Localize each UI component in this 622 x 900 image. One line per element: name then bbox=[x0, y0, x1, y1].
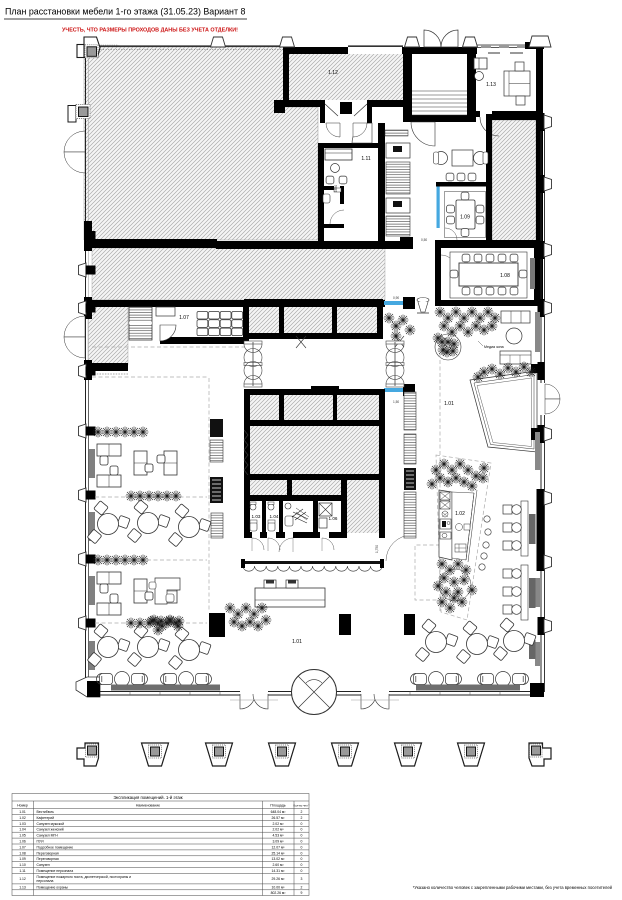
svg-text:1.11: 1.11 bbox=[361, 156, 371, 162]
svg-text:Подсобное помещение: Подсобное помещение bbox=[37, 845, 74, 849]
svg-text:1.09: 1.09 bbox=[19, 857, 26, 861]
svg-text:Экспликация помещений. 1-й эта: Экспликация помещений. 1-й этаж bbox=[113, 795, 182, 800]
svg-text:1.01: 1.01 bbox=[444, 401, 454, 407]
svg-text:1650: 1650 bbox=[334, 185, 338, 192]
svg-text:Переговорная: Переговорная bbox=[37, 851, 59, 855]
svg-text:2: 2 bbox=[301, 816, 303, 820]
svg-text:1.04: 1.04 bbox=[270, 514, 279, 519]
svg-text:0: 0 bbox=[301, 851, 303, 855]
svg-text:*Указано количество человек с: *Указано количество человек с закрепленн… bbox=[413, 885, 613, 890]
svg-text:УЧЕСТЬ, ЧТО РАЗМЕРЫ ПРОХОДОВ Д: УЧЕСТЬ, ЧТО РАЗМЕРЫ ПРОХОДОВ ДАНЫ БЕЗ УЧ… bbox=[62, 28, 238, 34]
svg-text:Санузел: Санузел bbox=[37, 863, 50, 867]
svg-text:0: 0 bbox=[301, 863, 303, 867]
svg-text:План расстановки мебели 1-го э: План расстановки мебели 1-го этажа (31.0… bbox=[5, 7, 245, 17]
svg-text:1.04: 1.04 bbox=[19, 828, 26, 832]
svg-text:2.02 м²: 2.02 м² bbox=[272, 828, 284, 832]
svg-text:Наименование: Наименование bbox=[136, 804, 160, 808]
svg-text:3.09 м²: 3.09 м² bbox=[272, 840, 284, 844]
svg-text:1.02: 1.02 bbox=[19, 816, 26, 820]
svg-text:0,50: 0,50 bbox=[421, 238, 427, 242]
svg-text:14.31 м²: 14.31 м² bbox=[272, 869, 286, 873]
svg-text:9: 9 bbox=[301, 891, 303, 895]
svg-text:13.02 м²: 13.02 м² bbox=[272, 857, 286, 861]
svg-text:2.60 м²: 2.60 м² bbox=[272, 863, 284, 867]
svg-text:4.53 м²: 4.53 м² bbox=[272, 834, 284, 838]
svg-text:12.07 м²: 12.07 м² bbox=[272, 845, 286, 849]
svg-text:1.03: 1.03 bbox=[19, 822, 26, 826]
svg-text:1.12: 1.12 bbox=[328, 70, 338, 76]
svg-text:0: 0 bbox=[301, 845, 303, 849]
svg-text:0: 0 bbox=[301, 828, 303, 832]
svg-text:1.13: 1.13 bbox=[486, 82, 496, 88]
svg-text:1.06: 1.06 bbox=[19, 840, 26, 844]
svg-text:0: 0 bbox=[301, 857, 303, 861]
svg-text:10.00 м²: 10.00 м² bbox=[272, 885, 286, 889]
svg-text:1.05: 1.05 bbox=[19, 834, 26, 838]
svg-text:25.14 м²: 25.14 м² bbox=[272, 851, 286, 855]
svg-text:2.02 м²: 2.02 м² bbox=[272, 822, 284, 826]
svg-text:1.12: 1.12 bbox=[19, 877, 26, 881]
svg-text:648.04 м²: 648.04 м² bbox=[271, 810, 287, 814]
svg-text:0,90: 0,90 bbox=[393, 296, 399, 300]
svg-text:Помещение персонала: Помещение персонала bbox=[37, 869, 74, 873]
svg-text:Вестибюль: Вестибюль bbox=[37, 810, 55, 814]
svg-text:Кол-во чел *: Кол-во чел * bbox=[294, 803, 311, 807]
svg-text:0: 0 bbox=[301, 834, 303, 838]
svg-text:1.03: 1.03 bbox=[252, 514, 261, 519]
svg-text:1.01: 1.01 bbox=[19, 810, 26, 814]
svg-text:Помещение охраны: Помещение охраны bbox=[37, 885, 69, 889]
svg-text:2: 2 bbox=[301, 885, 303, 889]
svg-text:персонала: персонала bbox=[37, 879, 54, 883]
svg-text:3: 3 bbox=[301, 877, 303, 881]
svg-text:26.57 м²: 26.57 м² bbox=[272, 816, 286, 820]
svg-text:1.08: 1.08 bbox=[500, 273, 510, 279]
svg-text:802.26 м²: 802.26 м² bbox=[271, 891, 287, 895]
svg-text:1.07: 1.07 bbox=[179, 315, 189, 321]
svg-text:1,50: 1,50 bbox=[393, 400, 399, 404]
svg-text:1.06: 1.06 bbox=[329, 516, 338, 521]
svg-text:0: 0 bbox=[301, 869, 303, 873]
svg-text:1.05: 1.05 bbox=[296, 531, 305, 536]
svg-text:1.11: 1.11 bbox=[19, 869, 25, 873]
svg-text:1.01: 1.01 bbox=[292, 639, 302, 645]
svg-text:2: 2 bbox=[301, 810, 303, 814]
svg-text:Переговорная: Переговорная bbox=[37, 857, 59, 861]
svg-text:Санузел мужской: Санузел мужской bbox=[37, 822, 65, 826]
svg-text:Санузел МГН: Санузел МГН bbox=[37, 834, 59, 838]
svg-text:1.10: 1.10 bbox=[19, 863, 26, 867]
svg-text:0: 0 bbox=[301, 822, 303, 826]
svg-text:0: 0 bbox=[301, 840, 303, 844]
svg-text:1,750: 1,750 bbox=[375, 545, 379, 553]
svg-text:1.09: 1.09 bbox=[460, 215, 470, 221]
svg-text:Номер: Номер bbox=[17, 804, 28, 808]
svg-text:1.02: 1.02 bbox=[455, 511, 465, 517]
svg-text:Медиа зона: Медиа зона bbox=[484, 345, 504, 349]
svg-text:29.26 м²: 29.26 м² bbox=[272, 877, 286, 881]
svg-text:ПУИ: ПУИ bbox=[37, 840, 45, 844]
svg-text:1.13: 1.13 bbox=[19, 885, 26, 889]
svg-text:1.07: 1.07 bbox=[19, 845, 26, 849]
svg-text:Санузел женский: Санузел женский bbox=[37, 828, 64, 832]
svg-text:Кафетерий: Кафетерий bbox=[37, 816, 55, 820]
svg-text:Площадь: Площадь bbox=[270, 804, 285, 808]
svg-text:1.08: 1.08 bbox=[19, 851, 26, 855]
